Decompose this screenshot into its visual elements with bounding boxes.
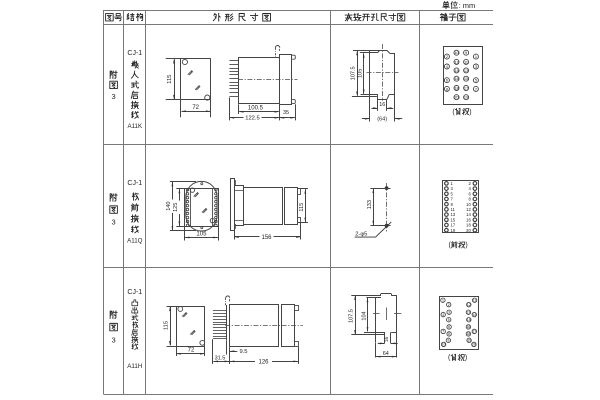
svg-text:14: 14 xyxy=(472,313,476,317)
svg-text:3: 3 xyxy=(112,92,116,101)
svg-text:3: 3 xyxy=(112,218,116,227)
svg-text:105: 105 xyxy=(358,69,364,78)
svg-text:5: 5 xyxy=(448,318,450,322)
svg-text:122.5: 122.5 xyxy=(245,116,260,122)
svg-text:13: 13 xyxy=(467,311,471,315)
svg-text:156: 156 xyxy=(261,235,272,241)
svg-text:64: 64 xyxy=(383,351,389,357)
svg-text:17: 17 xyxy=(464,85,468,90)
svg-text:115: 115 xyxy=(164,321,170,330)
svg-text:20: 20 xyxy=(466,228,471,233)
svg-text:(64): (64) xyxy=(377,117,387,123)
svg-text:12: 12 xyxy=(467,303,471,307)
svg-text:18: 18 xyxy=(454,85,458,90)
svg-text:3: 3 xyxy=(448,311,450,315)
svg-text:19: 19 xyxy=(467,339,471,343)
svg-text:13: 13 xyxy=(464,68,468,73)
svg-text:126: 126 xyxy=(258,359,269,365)
svg-text:3: 3 xyxy=(112,336,116,345)
svg-text:35: 35 xyxy=(283,110,289,116)
svg-text:107.5: 107.5 xyxy=(351,66,357,80)
svg-text:107.5: 107.5 xyxy=(349,309,355,323)
svg-text:10: 10 xyxy=(442,343,446,347)
svg-text:2: 2 xyxy=(448,303,450,307)
svg-text:15: 15 xyxy=(464,76,468,81)
svg-text:104: 104 xyxy=(361,311,367,320)
svg-text:125: 125 xyxy=(173,203,179,212)
svg-text:A11H: A11H xyxy=(127,363,142,370)
svg-text:3: 3 xyxy=(475,64,477,69)
svg-text:6: 6 xyxy=(448,325,450,329)
svg-text:1: 1 xyxy=(442,299,444,303)
svg-text:A11K: A11K xyxy=(127,123,143,130)
svg-text:105: 105 xyxy=(196,231,207,237)
svg-text:): ) xyxy=(469,109,471,116)
svg-text:19: 19 xyxy=(464,95,468,100)
svg-text:CJ-1: CJ-1 xyxy=(127,180,142,187)
svg-text:8: 8 xyxy=(448,332,450,336)
svg-text:16: 16 xyxy=(454,76,458,81)
svg-text:11: 11 xyxy=(464,59,468,64)
svg-text:5: 5 xyxy=(475,78,477,83)
svg-text:9.5: 9.5 xyxy=(239,349,247,355)
svg-text:CJ-1: CJ-1 xyxy=(127,50,142,57)
svg-text:100.5: 100.5 xyxy=(248,105,264,111)
svg-text::: : xyxy=(459,1,461,10)
svg-text:72: 72 xyxy=(192,105,199,111)
svg-text:A11Q: A11Q xyxy=(127,237,143,244)
svg-text:16: 16 xyxy=(379,102,385,108)
svg-text:): ) xyxy=(465,355,467,362)
svg-text:133: 133 xyxy=(367,200,373,209)
svg-text:140: 140 xyxy=(166,202,172,211)
svg-text:115: 115 xyxy=(299,203,305,212)
svg-text:31.5: 31.5 xyxy=(215,355,226,361)
svg-text:12: 12 xyxy=(454,59,458,64)
svg-text:9: 9 xyxy=(447,339,449,343)
svg-text:6: 6 xyxy=(446,78,448,83)
svg-text:9: 9 xyxy=(465,50,467,55)
svg-text:20: 20 xyxy=(472,343,476,347)
svg-text:16: 16 xyxy=(467,325,471,329)
svg-text:15: 15 xyxy=(467,318,471,322)
svg-text:4: 4 xyxy=(442,313,444,317)
svg-text:1: 1 xyxy=(475,54,477,59)
svg-text:2: 2 xyxy=(446,54,448,59)
svg-text:18: 18 xyxy=(467,332,471,336)
svg-text:8: 8 xyxy=(446,86,448,91)
svg-text:7: 7 xyxy=(442,330,444,334)
svg-text:mm: mm xyxy=(463,1,476,10)
svg-text:72: 72 xyxy=(188,348,195,354)
svg-text:7: 7 xyxy=(475,86,477,91)
svg-text:11: 11 xyxy=(473,299,477,303)
svg-text:16: 16 xyxy=(384,337,389,343)
svg-text:CJ-1: CJ-1 xyxy=(127,289,142,296)
svg-text:115: 115 xyxy=(167,75,173,84)
svg-text:17: 17 xyxy=(472,330,476,334)
svg-text:19: 19 xyxy=(451,228,456,233)
svg-text:): ) xyxy=(465,242,467,249)
svg-text:2-φ5: 2-φ5 xyxy=(355,232,367,238)
